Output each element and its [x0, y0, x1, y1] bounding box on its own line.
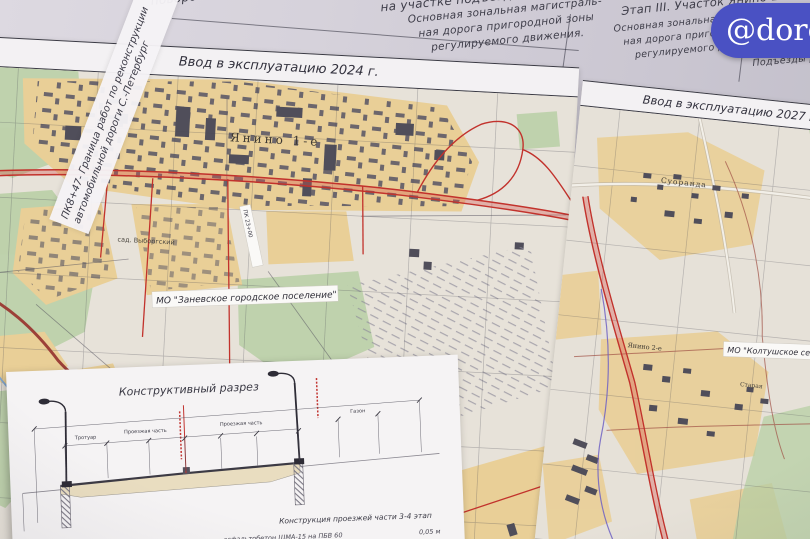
photo-of-road-plan: повороты исключены строительства 6 этапа…: [0, 0, 810, 539]
label-roadway-left: Проезжая часть: [124, 428, 167, 436]
cross-section-title: Конструктивный разрез: [119, 380, 260, 398]
streetlamp-right: [268, 370, 304, 465]
sheet-2024-header-label: Ввод в эксплуатацию 2024 г.: [178, 54, 379, 79]
cross-section-panel: Конструктивный разрез: [6, 355, 465, 539]
cross-section-drawing: Конструктивный разрез: [6, 355, 465, 539]
pile-left: [60, 486, 71, 528]
label-gazon: Газон: [350, 408, 365, 415]
subgrade: [60, 463, 301, 498]
cross-section-footer-line: асфальтобетон ЩМА-15 на ПБВ 60: [223, 531, 342, 539]
label-sidewalk: Тротуар: [74, 435, 97, 442]
watermark-text: @dorog: [711, 13, 810, 48]
label-roadway-right: Проезжая часть: [220, 420, 263, 428]
dimension-lines: [20, 400, 424, 531]
cross-section-footer-value: 0,05 м: [419, 527, 441, 536]
pile-right: [294, 463, 305, 505]
streetlamp-left: [39, 398, 71, 487]
watermark-badge: @dorog: [711, 3, 810, 58]
cross-section-footer: Конструкция проезжей части 3-4 этап: [279, 511, 432, 526]
